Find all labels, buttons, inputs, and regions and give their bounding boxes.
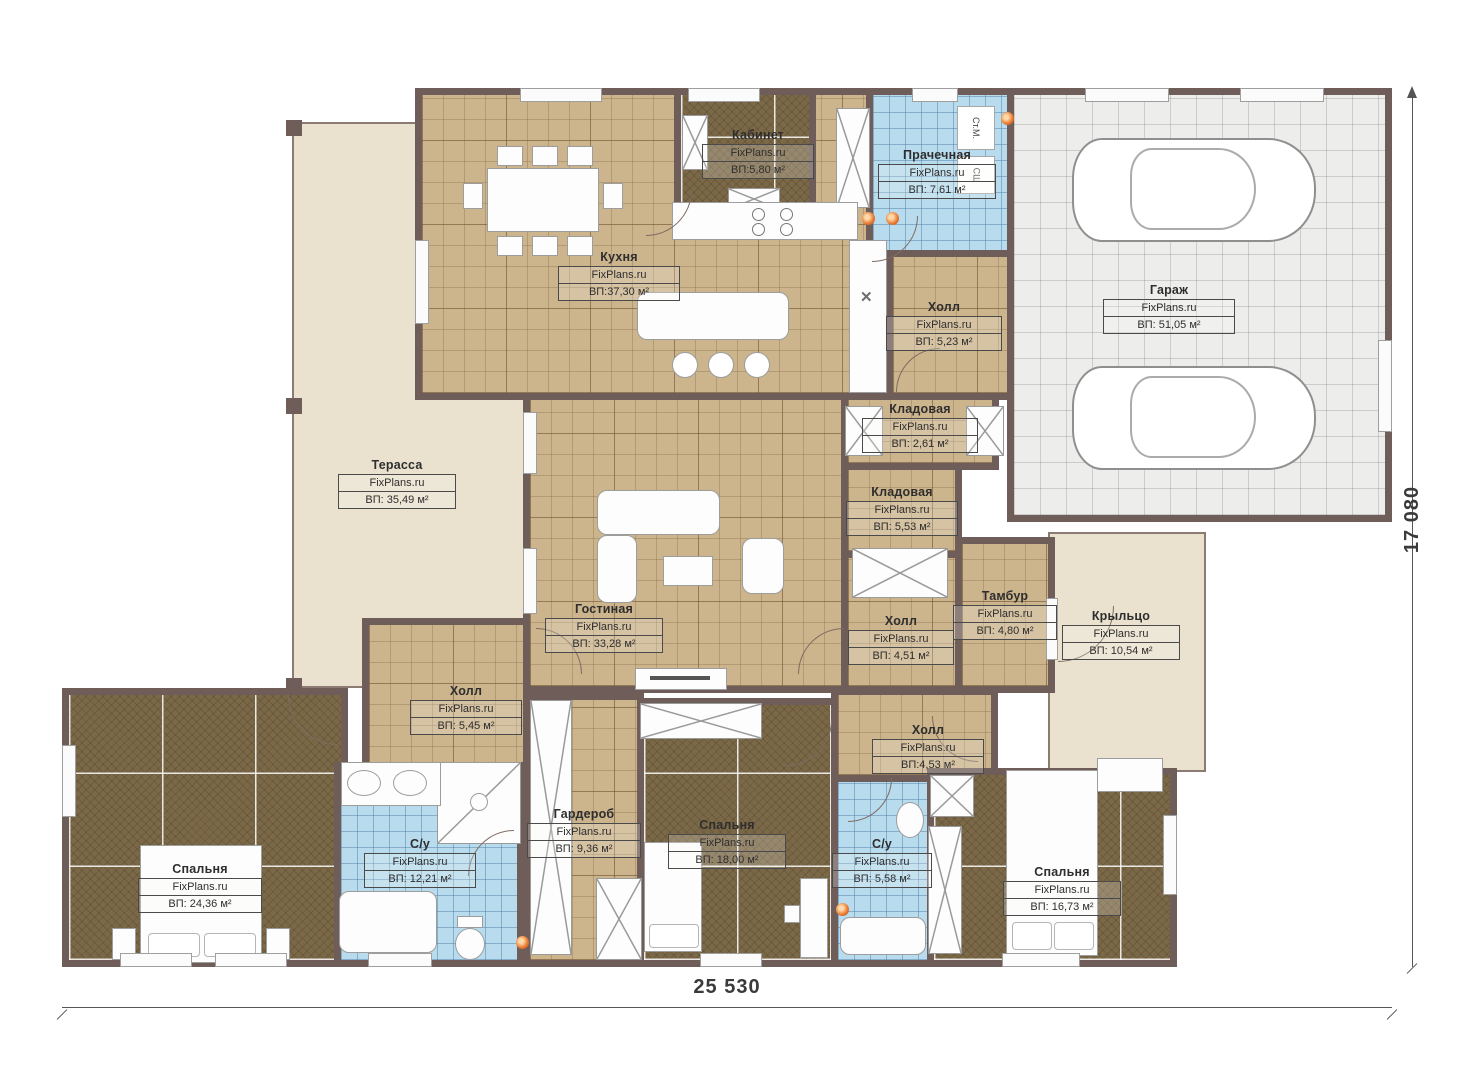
room-area: ВП: 5,45 м² [411,718,521,734]
shower-drain [470,793,488,811]
room-label-tambur: Тамбур FixPlans.ruВП: 4,80 м² [953,589,1057,640]
room-label-living: Гостиная FixPlans.ruВП: 33,28 м² [545,602,663,653]
sink [347,770,381,796]
room-label-storage-553: Кладовая FixPlans.ruВП: 5,53 м² [846,485,958,536]
watermark: FixPlans.ru [954,606,1056,623]
room-area: ВП: 33,28 м² [546,636,662,652]
terrace-post [286,398,302,414]
pillow [649,924,699,948]
window [700,953,762,967]
dimension-height-value: 17 080 [1401,486,1424,553]
watermark: FixPlans.ru [1104,300,1234,317]
terrace-door [523,412,537,474]
sink-marker: ✕ [860,288,873,306]
watermark: FixPlans.ru [365,854,475,871]
sofa-chaise [597,535,637,603]
room-label-office: Кабинет FixPlans.ruВП:5,80 м² [702,128,814,179]
sink [896,802,924,838]
sofa [597,490,720,535]
desk [800,878,828,958]
bathtub [840,917,926,955]
car [1072,366,1316,470]
window [120,953,192,967]
room-label-bedroom-1800: Спальня FixPlans.ruВП: 18,00 м² [668,818,786,869]
window [912,88,958,102]
toilet-bowl [455,928,485,960]
dimension-tick [1387,1009,1398,1020]
watermark: FixPlans.ru [139,879,261,896]
room-area: ВП: 18,00 м² [669,852,785,868]
room-area: ВП: 9,36 м² [528,841,640,857]
dresser [1097,758,1163,792]
room-area: ВП: 5,23 м² [887,334,1001,350]
room-label-bedroom-2436: Спальня FixPlans.ruВП: 24,36 м² [138,862,262,913]
terrace-opening [415,240,429,324]
kitchen-counter [849,240,887,393]
sink [393,770,427,796]
stove-burner [752,208,765,221]
watermark: FixPlans.ru [887,317,1001,334]
watermark: FixPlans.ru [833,854,931,871]
dining-chair [532,146,558,166]
dining-chair [497,236,523,256]
coffee-table [663,556,713,586]
light-dot [886,212,899,225]
bar-stool [708,352,734,378]
watermark: FixPlans.ru [559,267,679,284]
stove-burner [752,223,765,236]
dimension-width-value: 25 530 [693,976,760,998]
light-dot [516,936,529,949]
watermark: FixPlans.ru [703,145,813,162]
terrace-door [523,548,537,614]
room-kitchen [415,88,893,400]
window [1002,953,1080,967]
storage-box [852,548,948,598]
room-label-terrace: Терасса FixPlans.ruВП: 35,49 м² [338,458,456,509]
dimension-arrow-icon [1407,86,1417,98]
tv [650,676,710,680]
room-label-wardrobe: Гардероб FixPlans.ruВП: 9,36 м² [527,807,641,858]
light-dot [836,903,849,916]
room-area: ВП: 24,36 м² [139,896,261,912]
closet-box [930,775,974,817]
terrace-post [286,678,302,694]
armchair [742,538,784,594]
watermark: FixPlans.ru [849,631,953,648]
room-area: ВП: 4,80 м² [954,623,1056,639]
room-area: ВП: 16,73 м² [1004,899,1120,915]
closet-box [640,703,762,739]
floor-plan: ✕ [0,0,1474,1080]
stove-burner [780,223,793,236]
room-label-hall-523: Холл FixPlans.ruВП: 5,23 м² [886,300,1002,351]
watermark: FixPlans.ru [339,475,455,492]
bathtub [339,891,437,953]
pillow [1054,922,1094,950]
room-label-garage: Гараж FixPlans.ruВП: 51,05 м² [1103,283,1235,334]
window [62,745,76,817]
closet-box [928,826,962,954]
window [1085,88,1169,102]
dining-table [487,168,599,232]
room-label-laundry: Прачечная FixPlans.ruВП: 7,61 м² [878,148,996,199]
wardrobe-cabinet [596,878,642,960]
room-area: ВП: 51,05 м² [1104,317,1234,333]
car [1072,138,1316,242]
watermark: FixPlans.ru [411,701,521,718]
dining-chair [497,146,523,166]
washing-machine: Ст.М. [957,106,995,150]
window [1240,88,1324,102]
watermark: FixPlans.ru [847,502,957,519]
dining-chair [603,183,623,209]
room-area: ВП: 2,61 м² [863,436,977,452]
watermark: FixPlans.ru [879,165,995,182]
room-area: ВП: 35,49 м² [339,492,455,508]
watermark: FixPlans.ru [669,835,785,852]
pillow [1012,922,1052,950]
room-area: ВП: 12,21 м² [365,871,475,887]
room-area: ВП: 7,61 м² [879,182,995,198]
dimension-tick [57,1009,68,1020]
light-dot [1001,112,1014,125]
kitchen-counter [672,202,858,240]
window [1163,815,1177,895]
watermark: FixPlans.ru [1063,626,1179,643]
watermark: FixPlans.ru [873,740,983,757]
terrace-post [286,120,302,136]
room-area: ВП: 5,58 м² [833,871,931,887]
room-area: ВП:4,53 м² [873,757,983,773]
room-label-kitchen: Кухня FixPlans.ruВП:37,30 м² [558,250,680,301]
shaft-box [836,108,870,208]
room-label-bath-1221: С/у FixPlans.ruВП: 12,21 м² [364,837,476,888]
room-label-porch: Крыльцо FixPlans.ruВП: 10,54 м² [1062,609,1180,660]
room-label-hall-453: Холл FixPlans.ruВП:4,53 м² [872,723,984,774]
watermark: FixPlans.ru [863,419,977,436]
watermark: FixPlans.ru [1004,882,1120,899]
dining-chair [567,146,593,166]
window [368,953,432,967]
window [215,953,287,967]
dimension-line [62,1007,1392,1008]
washer-label: Ст.М. [971,117,981,139]
stove-burner [780,208,793,221]
dining-chair [532,236,558,256]
bar-stool [744,352,770,378]
bar-stool [672,352,698,378]
light-dot [862,212,875,225]
room-label-storage-261: Кладовая FixPlans.ruВП: 2,61 м² [862,402,978,453]
desk-chair [784,905,800,923]
room-area: ВП:5,80 м² [703,162,813,178]
watermark: FixPlans.ru [546,619,662,636]
window [1378,340,1392,432]
room-label-bath-558: С/у FixPlans.ruВП: 5,58 м² [832,837,932,888]
room-area: ВП: 5,53 м² [847,519,957,535]
room-label-hall-451: Холл FixPlans.ruВП: 4,51 м² [848,614,954,665]
dimension-horizontal: 25 530 [62,976,1392,1008]
room-area: ВП: 10,54 м² [1063,643,1179,659]
window [520,88,602,102]
toilet-tank [457,916,483,928]
room-label-hall-545: Холл FixPlans.ruВП: 5,45 м² [410,684,522,735]
dimension-vertical: 17 080 [1412,88,1413,967]
watermark: FixPlans.ru [528,824,640,841]
room-area: ВП:37,30 м² [559,284,679,300]
room-label-bedroom-1673: Спальня FixPlans.ruВП: 16,73 м² [1003,865,1121,916]
dining-chair [463,183,483,209]
room-area: ВП: 4,51 м² [849,648,953,664]
dimension-tick [1407,963,1418,974]
window [688,88,760,102]
